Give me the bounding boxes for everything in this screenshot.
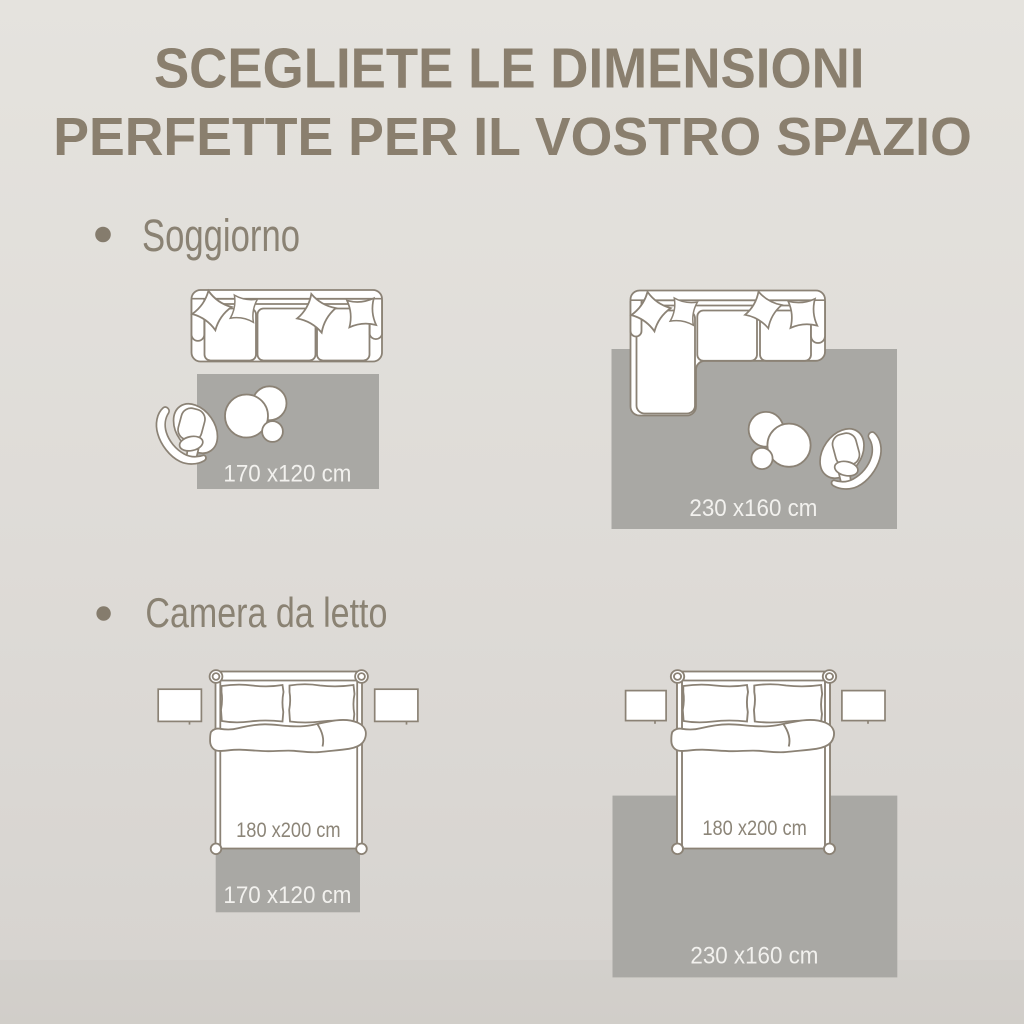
svg-text:Camera da letto: Camera da letto [145,589,387,636]
svg-text:180 x200 cm: 180 x200 cm [702,816,807,840]
svg-text:Soggiorno: Soggiorno [142,210,300,261]
svg-text:180 x200 cm: 180 x200 cm [236,818,341,842]
svg-text:170 x120 cm: 170 x120 cm [223,460,351,487]
svg-text:PERFETTE PER IL VOSTRO SPAZIO: PERFETTE PER IL VOSTRO SPAZIO [53,107,972,167]
svg-text:230 x160 cm: 230 x160 cm [689,495,817,522]
svg-text:170 x120 cm: 170 x120 cm [223,882,351,909]
svg-text:SCEGLIETE LE DIMENSIONI: SCEGLIETE LE DIMENSIONI [154,36,865,100]
svg-text:230 x160 cm: 230 x160 cm [690,943,818,970]
